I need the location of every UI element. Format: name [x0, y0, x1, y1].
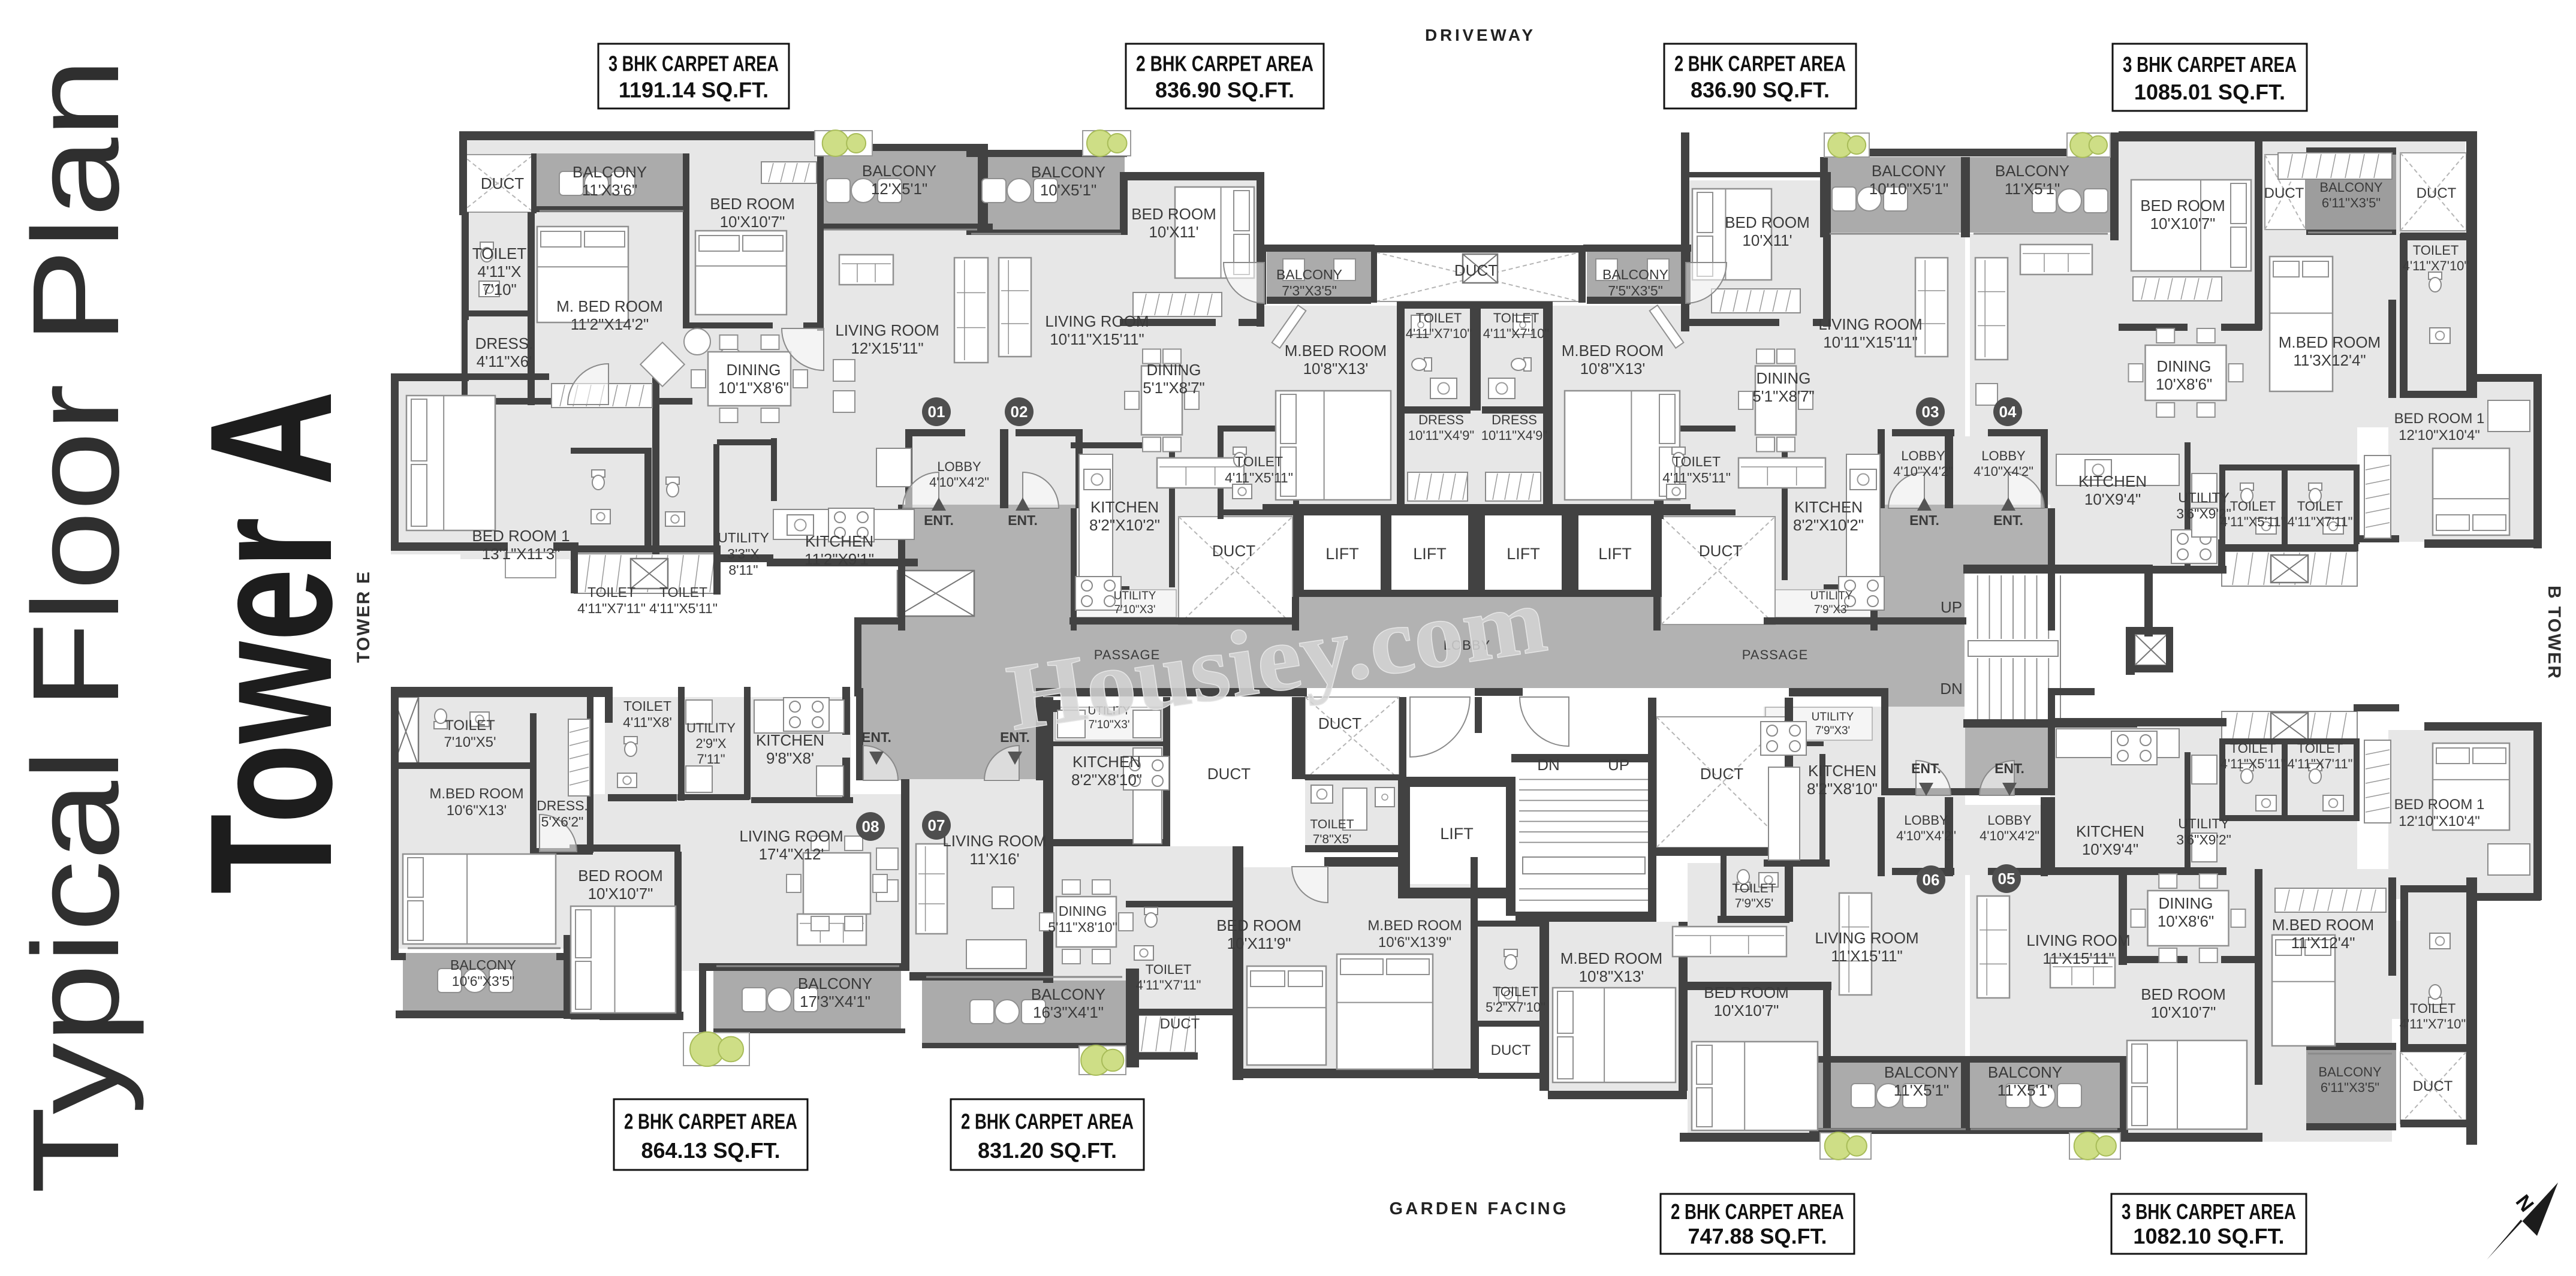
svg-text:4'11"X7'10": 4'11"X7'10"	[2400, 1016, 2466, 1031]
svg-text:10'X11': 10'X11'	[1149, 223, 1198, 241]
svg-text:7'8"X5': 7'8"X5'	[1313, 832, 1352, 846]
svg-text:TOILET: TOILET	[2297, 741, 2343, 756]
svg-text:10'8"X13': 10'8"X13'	[1579, 967, 1644, 985]
svg-text:LIVING ROOM: LIVING ROOM	[1815, 929, 1918, 947]
svg-text:BALCONY: BALCONY	[862, 162, 936, 180]
svg-text:DUCT: DUCT	[1212, 542, 1255, 560]
svg-text:831.20 SQ.FT.: 831.20 SQ.FT.	[978, 1138, 1117, 1163]
svg-text:6'11"X3'5": 6'11"X3'5"	[2321, 1080, 2379, 1095]
svg-text:BALCONY: BALCONY	[1988, 1063, 2062, 1081]
svg-text:12'10"X10'4": 12'10"X10'4"	[2399, 813, 2480, 829]
svg-text:747.88 SQ.FT.: 747.88 SQ.FT.	[1688, 1224, 1827, 1248]
svg-text:4'10"X4'2": 4'10"X4'2"	[929, 475, 989, 490]
svg-text:4'10"X4'2": 4'10"X4'2"	[1893, 464, 1953, 479]
svg-text:11'2"X9'1": 11'2"X9'1"	[805, 550, 874, 568]
svg-text:BALCONY: BALCONY	[1884, 1063, 1959, 1081]
svg-text:DUCT: DUCT	[1700, 765, 1743, 783]
svg-text:7'9"X3': 7'9"X3'	[1814, 604, 1849, 616]
svg-text:TOILET: TOILET	[1310, 818, 1354, 831]
svg-text:BED ROOM: BED ROOM	[1725, 213, 1810, 231]
svg-text:10'X8'6": 10'X8'6"	[2156, 375, 2212, 393]
svg-text:ENT.: ENT.	[1994, 761, 2024, 776]
svg-text:02: 02	[1011, 403, 1028, 421]
svg-text:11'X5'1": 11'X5'1"	[1997, 1081, 2053, 1099]
svg-text:KITCHEN: KITCHEN	[1794, 498, 1863, 516]
svg-text:07: 07	[928, 816, 945, 834]
svg-text:TOILET: TOILET	[445, 717, 495, 734]
svg-text:BED ROOM: BED ROOM	[2140, 197, 2225, 215]
svg-text:1082.10 SQ.FT.: 1082.10 SQ.FT.	[2133, 1224, 2284, 1248]
svg-text:DINING: DINING	[2157, 357, 2212, 375]
svg-text:LIVING ROOM: LIVING ROOM	[1818, 315, 1922, 333]
svg-text:BED ROOM: BED ROOM	[1704, 984, 1789, 1002]
svg-text:10'10"X5'1": 10'10"X5'1"	[1869, 180, 1949, 198]
svg-text:BALCONY: BALCONY	[1872, 162, 1946, 180]
svg-text:ENT.: ENT.	[1993, 512, 2023, 528]
svg-text:BALCONY: BALCONY	[573, 163, 647, 181]
svg-text:TOILET: TOILET	[659, 584, 707, 600]
svg-text:M.BED ROOM: M.BED ROOM	[1560, 949, 1662, 967]
svg-text:2'9"X: 2'9"X	[695, 736, 726, 751]
svg-text:3 BHK CARPET AREA: 3 BHK CARPET AREA	[608, 51, 779, 76]
svg-text:LOBBY: LOBBY	[937, 459, 981, 474]
svg-text:LIFT: LIFT	[1507, 545, 1540, 563]
svg-text:LIVING ROOM: LIVING ROOM	[2026, 931, 2130, 949]
svg-text:KITCHEN: KITCHEN	[805, 532, 873, 550]
svg-text:DUCT: DUCT	[2413, 1078, 2453, 1094]
svg-text:6'11"X3'5": 6'11"X3'5"	[2322, 195, 2381, 210]
svg-text:BALCONY: BALCONY	[1276, 267, 1342, 282]
svg-text:2 BHK CARPET AREA: 2 BHK CARPET AREA	[624, 1109, 797, 1134]
svg-text:10'X8'6": 10'X8'6"	[2158, 912, 2214, 930]
svg-text:BED ROOM: BED ROOM	[578, 867, 663, 885]
svg-text:TOILET: TOILET	[1673, 454, 1721, 469]
svg-text:TOILET: TOILET	[1235, 454, 1283, 469]
svg-text:10'6"X13'9": 10'6"X13'9"	[1378, 934, 1451, 951]
svg-text:10'X9'4": 10'X9'4"	[2082, 840, 2138, 858]
svg-text:TOILET: TOILET	[2410, 1001, 2456, 1016]
svg-text:17'4"X12': 17'4"X12'	[759, 845, 824, 863]
svg-text:ENT.: ENT.	[924, 512, 954, 528]
svg-text:05: 05	[1998, 870, 2015, 888]
svg-text:11'3X12'4": 11'3X12'4"	[2293, 351, 2366, 369]
svg-text:3'6"X9'2": 3'6"X9'2"	[2176, 832, 2231, 847]
svg-text:7'9"X5': 7'9"X5'	[1735, 897, 1774, 910]
svg-text:11'2"X14'2": 11'2"X14'2"	[571, 315, 649, 333]
svg-text:4'11"X: 4'11"X	[478, 263, 522, 280]
svg-text:LIVING ROOM: LIVING ROOM	[1045, 312, 1149, 330]
svg-text:M.BED ROOM: M.BED ROOM	[2272, 916, 2374, 934]
svg-text:7'10": 7'10"	[482, 280, 517, 298]
svg-text:ENT.: ENT.	[1911, 761, 1941, 776]
svg-text:LIFT: LIFT	[1440, 825, 1474, 843]
svg-text:10'1"X8'6": 10'1"X8'6"	[718, 379, 789, 397]
svg-text:2 BHK CARPET AREA: 2 BHK CARPET AREA	[1671, 1199, 1844, 1224]
svg-text:DRESS.: DRESS.	[537, 798, 588, 813]
svg-text:LOBBY: LOBBY	[1904, 813, 1948, 828]
svg-text:LIVING ROOM: LIVING ROOM	[942, 832, 1046, 850]
svg-text:Tower A: Tower A	[174, 391, 368, 894]
svg-text:4'11"X7'11": 4'11"X7'11"	[577, 601, 646, 616]
svg-text:4'11"X8': 4'11"X8'	[623, 714, 672, 730]
svg-text:BED ROOM: BED ROOM	[1216, 916, 1301, 934]
svg-text:TOILET: TOILET	[587, 584, 635, 600]
svg-text:DN: DN	[1940, 680, 1963, 698]
svg-text:4'11"X5'11": 4'11"X5'11"	[1662, 470, 1731, 485]
svg-text:TOILET: TOILET	[2230, 499, 2276, 514]
svg-text:BALCONY: BALCONY	[798, 975, 872, 993]
svg-text:DRESS: DRESS	[1418, 412, 1464, 427]
svg-text:M.BED ROOM: M.BED ROOM	[1367, 918, 1462, 934]
svg-text:PASSAGE: PASSAGE	[1742, 647, 1809, 662]
svg-text:LIFT: LIFT	[1413, 545, 1447, 563]
svg-text:BED ROOM 1: BED ROOM 1	[472, 527, 570, 545]
svg-text:UTILITY: UTILITY	[1114, 590, 1156, 602]
svg-text:5'1"X8'7": 5'1"X8'7"	[1143, 379, 1205, 397]
svg-text:B TOWER: B TOWER	[2544, 586, 2564, 683]
svg-text:DRIVEWAY: DRIVEWAY	[1425, 26, 1533, 44]
svg-text:10'X10'7": 10'X10'7"	[2151, 1003, 2216, 1021]
svg-text:LIFT: LIFT	[1598, 545, 1632, 563]
svg-text:UTILITY: UTILITY	[2178, 816, 2229, 831]
svg-text:TOILET: TOILET	[2230, 741, 2276, 756]
svg-text:8'2"X8'10": 8'2"X8'10"	[1807, 780, 1878, 798]
svg-text:4'11"X7'11": 4'11"X7'11"	[1136, 978, 1201, 993]
svg-text:12'10"X10'4": 12'10"X10'4"	[2399, 427, 2480, 444]
svg-text:ENT.: ENT.	[861, 729, 891, 745]
svg-text:03: 03	[1922, 403, 1939, 421]
svg-text:DUCT: DUCT	[2417, 185, 2457, 201]
svg-text:10'6"X3'5": 10'6"X3'5"	[452, 973, 514, 989]
svg-text:2 BHK CARPET AREA: 2 BHK CARPET AREA	[1136, 51, 1313, 76]
svg-text:7'9"X3': 7'9"X3'	[1815, 725, 1850, 737]
svg-text:10'X10'7": 10'X10'7"	[1714, 1002, 1779, 1019]
svg-text:11'X15'11": 11'X15'11"	[2042, 949, 2114, 967]
svg-text:Typical Floor Plan: Typical Floor Plan	[7, 58, 144, 1194]
svg-text:M.BED ROOM: M.BED ROOM	[1285, 342, 1387, 360]
svg-text:4'11"X7'11": 4'11"X7'11"	[2288, 756, 2353, 771]
svg-text:4'11"X5'11": 4'11"X5'11"	[649, 601, 718, 616]
svg-text:TOILET: TOILET	[1493, 310, 1539, 325]
svg-text:836.90 SQ.FT.: 836.90 SQ.FT.	[1155, 78, 1294, 102]
svg-text:M. BED ROOM: M. BED ROOM	[556, 297, 663, 315]
svg-text:M.BED ROOM: M.BED ROOM	[429, 786, 523, 802]
svg-text:DUCT: DUCT	[1454, 261, 1498, 279]
svg-text:10'11"X4'9": 10'11"X4'9"	[1408, 428, 1474, 443]
svg-text:11'X15'11": 11'X15'11"	[1831, 947, 1902, 965]
svg-text:LOBBY: LOBBY	[1987, 813, 2032, 828]
svg-text:5'2"X7'10": 5'2"X7'10"	[1486, 1000, 1545, 1015]
svg-text:UTILITY: UTILITY	[1812, 711, 1854, 723]
svg-text:7'10"X3': 7'10"X3'	[1114, 604, 1156, 616]
svg-text:LIVING ROOM: LIVING ROOM	[739, 827, 843, 845]
svg-text:3 BHK CARPET AREA: 3 BHK CARPET AREA	[2123, 52, 2297, 77]
svg-text:10'6"X13': 10'6"X13'	[447, 803, 507, 819]
svg-text:10'X10'7": 10'X10'7"	[588, 885, 653, 903]
svg-text:5'1"X8'7": 5'1"X8'7"	[1752, 387, 1815, 405]
svg-text:TOWER E: TOWER E	[354, 567, 373, 663]
svg-text:LOBBY: LOBBY	[1901, 448, 1945, 463]
svg-text:11'X16': 11'X16'	[969, 850, 1019, 868]
svg-text:TOILET: TOILET	[623, 698, 671, 714]
svg-text:8'2"X10'2": 8'2"X10'2"	[1089, 516, 1160, 534]
svg-text:3'3"X: 3'3"X	[727, 546, 759, 562]
svg-text:DINING: DINING	[1059, 903, 1107, 919]
svg-text:836.90 SQ.FT.: 836.90 SQ.FT.	[1691, 78, 1830, 102]
svg-text:12'X15'11": 12'X15'11"	[851, 339, 923, 357]
svg-text:BALCONY: BALCONY	[2318, 1064, 2381, 1079]
svg-text:5'X6'2": 5'X6'2"	[541, 814, 584, 829]
svg-text:8'2"X8'10": 8'2"X8'10"	[1071, 771, 1142, 789]
svg-text:4'10"X4'2": 4'10"X4'2"	[1896, 828, 1956, 843]
svg-text:01: 01	[928, 403, 945, 421]
svg-text:LOBBY: LOBBY	[1981, 448, 2026, 463]
svg-text:DUCT: DUCT	[1207, 765, 1251, 783]
svg-text:11'X5'1": 11'X5'1"	[1894, 1081, 1949, 1099]
svg-text:10'X5'1": 10'X5'1"	[1040, 181, 1096, 199]
svg-text:864.13 SQ.FT.: 864.13 SQ.FT.	[641, 1138, 780, 1163]
svg-text:DINING: DINING	[1147, 361, 1201, 379]
svg-text:10'11"X15'11": 10'11"X15'11"	[1823, 333, 1918, 351]
svg-text:10'X9'4": 10'X9'4"	[2084, 490, 2141, 508]
svg-text:2 BHK CARPET AREA: 2 BHK CARPET AREA	[961, 1109, 1134, 1134]
svg-text:4'10"X4'2": 4'10"X4'2"	[1980, 828, 2039, 843]
svg-text:8'2"X10'2": 8'2"X10'2"	[1793, 516, 1864, 534]
svg-text:12'X5'1": 12'X5'1"	[871, 180, 927, 198]
svg-text:BALCONY: BALCONY	[1031, 163, 1105, 181]
svg-text:11'X12'4": 11'X12'4"	[2291, 934, 2355, 952]
svg-text:8'11": 8'11"	[728, 562, 758, 578]
svg-text:DRESS: DRESS	[1492, 412, 1537, 427]
svg-text:TOILET: TOILET	[1416, 310, 1462, 325]
svg-text:4'11"X7'10": 4'11"X7'10"	[2403, 258, 2469, 273]
svg-text:DINING: DINING	[2159, 894, 2213, 912]
svg-text:2 BHK CARPET AREA: 2 BHK CARPET AREA	[1674, 51, 1846, 76]
svg-text:DUCT: DUCT	[1160, 1016, 1200, 1032]
svg-text:7'5"X3'5": 7'5"X3'5"	[1608, 283, 1663, 298]
svg-text:10'11"X4'9": 10'11"X4'9"	[1481, 428, 1547, 443]
svg-text:DN: DN	[1537, 756, 1560, 774]
svg-text:ENT.: ENT.	[1008, 512, 1038, 528]
svg-text:BED ROOM: BED ROOM	[1131, 205, 1216, 223]
svg-text:M.BED ROOM: M.BED ROOM	[2279, 333, 2381, 351]
svg-text:DRESS.: DRESS.	[475, 334, 534, 352]
svg-text:4'10"X4'2": 4'10"X4'2"	[1974, 464, 2033, 479]
svg-text:5'11"X8'10": 5'11"X8'10"	[1048, 919, 1117, 935]
svg-text:04: 04	[1999, 403, 2017, 421]
svg-text:UP: UP	[1608, 756, 1629, 774]
svg-text:M.BED ROOM: M.BED ROOM	[1562, 342, 1664, 360]
svg-text:7'10"X5': 7'10"X5'	[444, 734, 496, 750]
svg-text:BED ROOM: BED ROOM	[710, 195, 795, 213]
svg-text:7'11": 7'11"	[697, 752, 725, 767]
svg-text:UTILITY: UTILITY	[718, 530, 769, 545]
svg-text:LIFT: LIFT	[1325, 545, 1359, 563]
svg-text:11'X3'6": 11'X3'6"	[582, 181, 637, 199]
svg-text:10'X10'7": 10'X10'7"	[2150, 215, 2216, 233]
svg-text:DUCT: DUCT	[1699, 542, 1742, 560]
svg-text:KITCHEN: KITCHEN	[756, 731, 824, 749]
svg-text:DUCT: DUCT	[1491, 1042, 1531, 1058]
svg-text:08: 08	[862, 818, 879, 835]
svg-text:10'X11'9": 10'X11'9"	[1227, 934, 1291, 952]
svg-text:4'11"X5'11": 4'11"X5'11"	[1225, 470, 1293, 485]
svg-text:BED ROOM: BED ROOM	[2141, 985, 2226, 1003]
svg-text:10'8"X13': 10'8"X13'	[1580, 360, 1646, 378]
svg-text:KITCHEN: KITCHEN	[1808, 762, 1876, 780]
svg-text:BALCONY: BALCONY	[2319, 180, 2382, 195]
svg-text:UTILITY: UTILITY	[686, 720, 736, 735]
svg-text:1191.14 SQ.FT.: 1191.14 SQ.FT.	[619, 78, 769, 102]
svg-text:4'11"X7'10": 4'11"X7'10"	[1483, 326, 1549, 341]
svg-text:10'X10'7": 10'X10'7"	[720, 213, 785, 231]
svg-text:TOILET: TOILET	[1493, 984, 1539, 999]
svg-text:ENT.: ENT.	[1909, 512, 1939, 528]
svg-text:4'11"X5'11": 4'11"X5'11"	[2221, 514, 2286, 529]
svg-text:DINING: DINING	[1756, 369, 1811, 387]
svg-text:DUCT: DUCT	[2264, 185, 2304, 201]
svg-text:TOILET: TOILET	[1732, 882, 1776, 895]
svg-text:4'11"X7'10": 4'11"X7'10"	[1406, 326, 1472, 341]
svg-text:KITCHEN: KITCHEN	[1072, 753, 1141, 771]
svg-text:BED ROOM 1: BED ROOM 1	[2394, 797, 2485, 813]
svg-text:10'8"X13': 10'8"X13'	[1303, 360, 1369, 378]
svg-text:BALCONY: BALCONY	[1031, 985, 1105, 1003]
svg-text:17'3"X4'1": 17'3"X4'1"	[800, 993, 870, 1010]
svg-text:TOILET: TOILET	[2413, 243, 2459, 258]
svg-text:BALCONY: BALCONY	[1602, 267, 1668, 282]
svg-text:LIVING ROOM: LIVING ROOM	[835, 321, 939, 339]
svg-text:TOILET: TOILET	[472, 245, 527, 263]
svg-text:13'1"X11'3": 13'1"X11'3"	[482, 545, 561, 563]
svg-text:KITCHEN: KITCHEN	[2076, 822, 2144, 840]
svg-text:9'8"X8': 9'8"X8'	[766, 749, 814, 767]
svg-text:UTILITY: UTILITY	[1810, 590, 1853, 602]
svg-text:06: 06	[1923, 871, 1940, 889]
svg-text:DUCT: DUCT	[1318, 714, 1361, 732]
svg-text:DINING: DINING	[727, 361, 781, 379]
svg-text:DUCT: DUCT	[481, 174, 524, 192]
svg-text:BALCONY: BALCONY	[1995, 162, 2069, 180]
svg-text:BED ROOM 1: BED ROOM 1	[2394, 411, 2485, 427]
svg-text:KITCHEN: KITCHEN	[1090, 498, 1159, 516]
svg-text:4'11"X5'11": 4'11"X5'11"	[2221, 756, 2286, 771]
svg-text:3 BHK CARPET AREA: 3 BHK CARPET AREA	[2122, 1199, 2296, 1224]
svg-text:11'X5'1": 11'X5'1"	[2005, 180, 2060, 198]
svg-text:10'X11': 10'X11'	[1742, 231, 1792, 249]
svg-text:16'3"X4'1": 16'3"X4'1"	[1033, 1003, 1104, 1021]
svg-text:4'11"X6': 4'11"X6'	[477, 352, 532, 370]
svg-text:UTILITY: UTILITY	[2178, 490, 2229, 505]
svg-text:10'11"X15'11": 10'11"X15'11"	[1050, 330, 1144, 348]
svg-text:TOILET: TOILET	[2297, 499, 2343, 514]
svg-text:4'11"X7'11": 4'11"X7'11"	[2288, 514, 2353, 529]
svg-text:BALCONY: BALCONY	[450, 957, 516, 973]
svg-text:UP: UP	[1941, 598, 1962, 616]
svg-text:TOILET: TOILET	[1146, 962, 1192, 977]
svg-text:1085.01 SQ.FT.: 1085.01 SQ.FT.	[2134, 80, 2285, 104]
svg-text:KITCHEN: KITCHEN	[2078, 472, 2147, 490]
svg-text:7'3"X3'5": 7'3"X3'5"	[1282, 283, 1337, 298]
